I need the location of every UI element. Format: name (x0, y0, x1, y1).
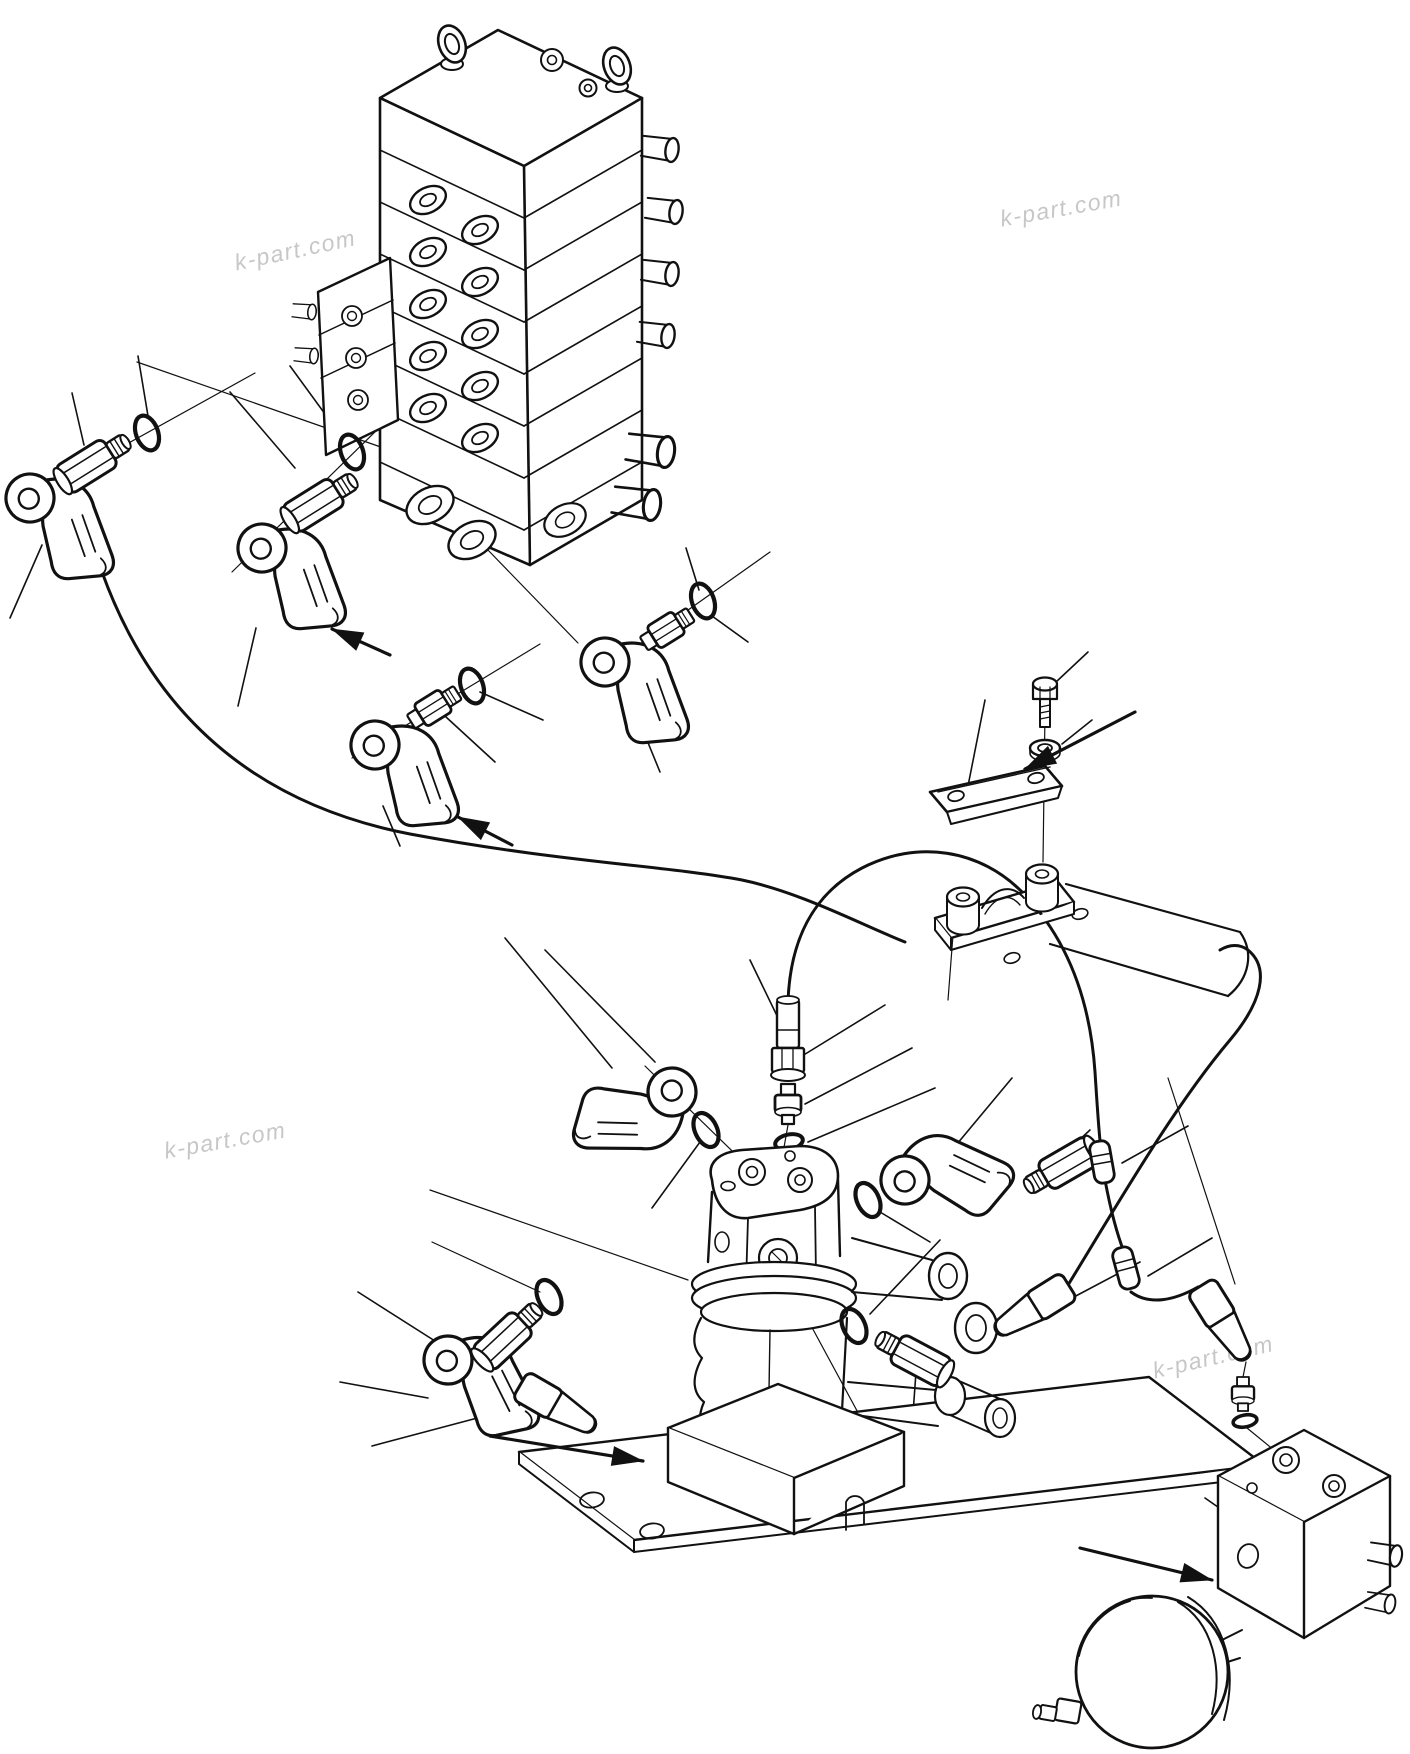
elbow-fitting (221, 516, 363, 640)
elbow-fitting (871, 1108, 1024, 1252)
pilot-valve-block (292, 258, 398, 455)
hose-end-fitting (987, 1272, 1077, 1345)
direction-arrow (458, 817, 512, 845)
elbow-fitting (564, 630, 706, 754)
o-ring (688, 1109, 723, 1151)
hose-coupler (1089, 1140, 1116, 1185)
o-ring (836, 1305, 871, 1347)
hose-left (102, 572, 905, 942)
union-fitting (637, 604, 697, 655)
direction-arrow (1080, 1548, 1212, 1580)
nipple-fitting (775, 1084, 801, 1124)
accumulator (1032, 1596, 1242, 1748)
o-ring (1232, 1413, 1258, 1429)
exploded-diagram (0, 0, 1410, 1754)
hose-swivel-right (1065, 946, 1260, 1291)
elbow-fitting (559, 1032, 708, 1187)
hose-clamp-hardware (930, 678, 1248, 997)
mounting-bolt (1033, 678, 1057, 728)
hose-coupler (1111, 1245, 1141, 1291)
elbow-fitting (334, 713, 476, 837)
nipple-fitting (1232, 1377, 1254, 1411)
clamp-plate (930, 766, 1062, 824)
hose-end-fitting (512, 1371, 603, 1442)
adapter-fitting (870, 1323, 958, 1390)
accumulator-valve-block (1032, 1278, 1404, 1748)
adapter-fitting (50, 426, 137, 497)
hoses (102, 572, 1260, 1300)
direction-arrow (332, 629, 390, 655)
hose-end-fitting (1187, 1278, 1260, 1368)
parts-diagram-page: k-part.com k-part.com k-part.com k-part.… (0, 0, 1410, 1754)
hose-bracket (935, 865, 1248, 997)
adapter-fitting (277, 465, 364, 536)
